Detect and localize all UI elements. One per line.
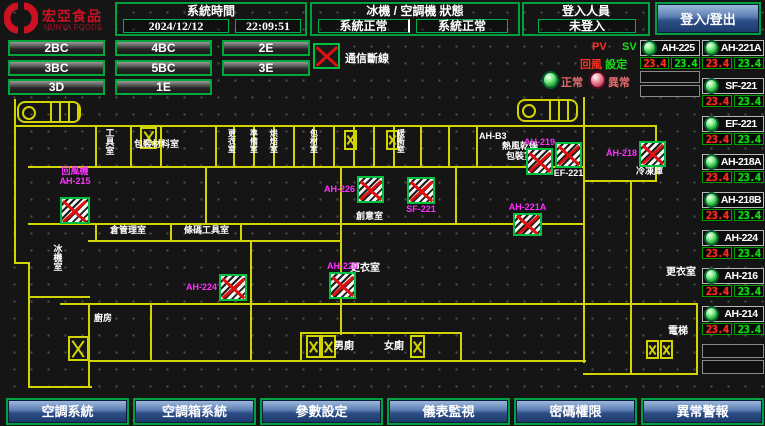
wall-segment <box>250 303 252 360</box>
status-lamp-icon <box>642 40 657 56</box>
device-label: AH-218 <box>599 149 637 159</box>
pv-value: 23.4 <box>702 171 732 183</box>
shaft-cross-icon <box>660 340 673 359</box>
room-label: 男廁 <box>334 342 354 353</box>
wall-segment <box>28 296 90 298</box>
wall-segment <box>215 125 217 168</box>
unit-values-ah-216: 23.423.4 <box>702 285 764 297</box>
pv-value: 23.4 <box>640 57 669 69</box>
wall-segment <box>130 125 132 168</box>
unit-label: AH-214 <box>719 308 763 320</box>
unit-ah-216[interactable]: AH-216 <box>702 268 764 284</box>
room-label: 包裝材料室 <box>134 140 179 149</box>
sv-value: 23.4 <box>734 323 764 335</box>
unit-label: AH-216 <box>719 270 763 282</box>
login-title: 登入人員 <box>524 4 648 18</box>
device-label: AH-224 <box>179 283 217 293</box>
logo: 宏亞食品 HUNYA FOODS <box>4 2 114 36</box>
room-label: 冷凍庫 <box>636 167 663 176</box>
chiller-status: 系統正常 <box>318 19 410 33</box>
room-label: 電梯 <box>668 327 688 338</box>
device-label: AH-220 <box>321 262 364 272</box>
sv-value: 23.4 <box>734 133 764 145</box>
login-logout-button[interactable]: 登入/登出 <box>657 4 759 33</box>
pv-value: 23.4 <box>702 285 732 297</box>
room-label: 緩衝室 <box>396 129 404 153</box>
device-ah-221a[interactable] <box>513 213 542 236</box>
system-time-title: 系統時間 <box>117 4 305 18</box>
shaft-cross-icon <box>410 335 425 358</box>
status-lamp-icon <box>704 306 719 322</box>
wall-segment <box>88 240 342 242</box>
unit-ah-221a[interactable]: AH-221A <box>702 40 764 56</box>
shaft-cross-icon <box>646 340 659 359</box>
room-label: 創意室 <box>356 212 383 221</box>
status-lamp-icon <box>704 268 719 284</box>
wall-segment <box>240 223 242 240</box>
unit-ah-214[interactable]: AH-214 <box>702 306 764 322</box>
abnormal-label: 異常 <box>608 74 630 90</box>
wall-segment <box>14 99 16 264</box>
room-label: 條碼工具室 <box>184 226 229 235</box>
pv-value: 23.4 <box>702 209 732 221</box>
nav-button-4[interactable]: 密碼權限 <box>516 400 635 423</box>
device-ah-224[interactable] <box>219 274 247 301</box>
unit-values-ah-225: 23.423.4 <box>640 57 700 69</box>
wall-segment <box>95 125 97 168</box>
room-label: 女廁 <box>384 342 404 353</box>
brand-logo-icon <box>4 2 38 34</box>
shaft-cross-icon <box>344 130 357 150</box>
sv-value: 23.4 <box>734 209 764 221</box>
time-value: 22:09:51 <box>235 19 301 33</box>
floor-button-3bc[interactable]: 3BC <box>8 60 105 76</box>
empty-slot <box>640 71 700 83</box>
scada-screen: 宏亞食品 HUNYA FOODS 系統時間 2024/12/12 22:09:5… <box>0 0 765 426</box>
wall-segment <box>583 180 655 182</box>
machine-status-title: 冰機 / 空調機 狀態 <box>312 4 518 18</box>
pv-label: PV <box>592 41 607 53</box>
nav-button-0[interactable]: 空調系統 <box>8 400 127 423</box>
wall-segment <box>28 386 92 388</box>
stairs-icon <box>17 101 81 123</box>
status-lamp-icon <box>704 154 719 170</box>
status-lamp-icon <box>704 192 719 208</box>
wall-segment <box>630 303 632 373</box>
device-ah-226[interactable] <box>357 176 384 203</box>
sv-value: 23.4 <box>734 95 764 107</box>
unit-ah-218a[interactable]: AH-218A <box>702 154 764 170</box>
room-label: 工具室 <box>104 128 113 155</box>
device-ef-221[interactable] <box>555 142 582 168</box>
shaft-cross-icon <box>68 336 89 361</box>
wall-segment <box>205 166 207 225</box>
wall-segment <box>88 360 303 362</box>
abnormal-lamp-icon <box>589 71 606 89</box>
device-label: 回風機AH-215 <box>52 167 98 187</box>
device-label: EF-221 <box>545 169 592 179</box>
device-label: AH-221A <box>505 203 550 213</box>
room-label: 更衣室 <box>227 129 235 153</box>
room-label: 更衣室 <box>666 268 696 279</box>
wall-segment <box>460 332 462 362</box>
empty-slot <box>702 360 764 374</box>
unit-ef-221[interactable]: EF-221 <box>702 116 764 132</box>
normal-lamp-icon <box>542 71 559 89</box>
floor-button-3e[interactable]: 3E <box>222 60 310 76</box>
wall-segment <box>300 360 586 362</box>
unit-label: AH-218A <box>719 156 763 168</box>
room-label: 準備室 <box>249 129 257 153</box>
comm-fail-icon <box>313 43 340 69</box>
room-label: 包材室 <box>309 129 317 153</box>
wall-segment <box>28 262 30 388</box>
room-label: 冰機室 <box>52 244 61 271</box>
wall-segment <box>630 180 632 305</box>
unit-label: SF-221 <box>719 80 763 92</box>
empty-slot <box>702 344 764 358</box>
login-status: 未登入 <box>538 19 636 33</box>
comm-fail-label: 通信斷線 <box>345 50 389 66</box>
nav-button-2[interactable]: 參數設定 <box>262 400 381 423</box>
device-label: SF-221 <box>397 205 445 215</box>
wall-segment <box>696 303 698 375</box>
wall-segment <box>420 125 422 168</box>
unit-sf-221[interactable]: SF-221 <box>702 78 764 94</box>
device-ah-215[interactable] <box>60 197 90 224</box>
room-label: 倉管理室 <box>110 226 146 235</box>
unit-label: AH-221A <box>719 42 763 54</box>
shaft-cross-icon <box>306 335 321 358</box>
sv-value: 23.4 <box>671 57 700 69</box>
wall-segment <box>448 125 450 168</box>
date-value: 2024/12/12 <box>123 19 229 33</box>
unit-label: AH-225 <box>657 42 699 54</box>
floor-button-2bc[interactable]: 2BC <box>8 40 105 56</box>
normal-label: 正常 <box>561 74 583 90</box>
wall-segment <box>455 166 457 225</box>
unit-values-ah-214: 23.423.4 <box>702 323 764 335</box>
unit-values-ah-218b: 23.423.4 <box>702 209 764 221</box>
nav-button-5[interactable]: 異常警報 <box>643 400 762 423</box>
floor-button-5bc[interactable]: 5BC <box>115 60 212 76</box>
pv-value: 23.4 <box>702 323 732 335</box>
wall-segment <box>150 303 152 360</box>
wall-segment <box>340 166 342 225</box>
ac-status: 系統正常 <box>416 19 508 33</box>
wall-segment <box>583 97 585 363</box>
wall-segment <box>583 373 698 375</box>
brand-name-en: HUNYA FOODS <box>44 23 102 32</box>
sv-value: 23.4 <box>734 57 764 69</box>
wall-segment <box>476 125 478 168</box>
device-ah-218[interactable] <box>639 141 666 167</box>
room-label: 烘焙室 <box>269 129 277 153</box>
login-section: 登入人員 未登入 <box>522 2 650 36</box>
status-lamp-icon <box>704 230 719 246</box>
system-time-section: 系統時間 2024/12/12 22:09:51 <box>115 2 307 36</box>
pv-value: 23.4 <box>702 133 732 145</box>
unit-label: AH-218B <box>719 194 763 206</box>
unit-label: AH-224 <box>719 232 763 244</box>
wall-segment <box>300 332 302 362</box>
wall-segment <box>300 332 462 334</box>
floor-button-4bc[interactable]: 4BC <box>115 40 212 56</box>
unit-values-ah-218a: 23.423.4 <box>702 171 764 183</box>
wall-segment <box>333 125 335 168</box>
machine-status-section: 冰機 / 空調機 狀態 系統正常 系統正常 <box>310 2 520 36</box>
device-sf-221[interactable] <box>407 177 435 204</box>
floor-button-2e[interactable]: 2E <box>222 40 310 56</box>
status-lamp-icon <box>704 78 719 94</box>
wall-segment <box>28 166 584 168</box>
unit-values-ef-221: 23.423.4 <box>702 133 764 145</box>
unit-ah-224[interactable]: AH-224 <box>702 230 764 246</box>
pv-value: 23.4 <box>702 57 732 69</box>
floor-button-3d[interactable]: 3D <box>8 79 105 95</box>
empty-slot <box>640 85 700 97</box>
sv-value: 23.4 <box>734 171 764 183</box>
setting-label-green: 設定 <box>605 56 627 72</box>
stairs-icon <box>517 99 578 122</box>
floor-button-1e[interactable]: 1E <box>115 79 212 95</box>
unit-values-ah-221a: 23.423.4 <box>702 57 764 69</box>
sv-value: 23.4 <box>734 247 764 259</box>
wall-segment <box>95 223 97 240</box>
unit-values-ah-224: 23.423.4 <box>702 247 764 259</box>
status-lamp-icon <box>704 116 719 132</box>
device-label: AH-226 <box>317 185 355 195</box>
wall-segment <box>170 223 172 240</box>
wall-segment <box>293 125 295 168</box>
status-lamp-icon <box>704 40 719 56</box>
wall-segment <box>373 125 375 168</box>
room-label: 廚房 <box>94 314 112 323</box>
unit-values-sf-221: 23.423.4 <box>702 95 764 107</box>
pv-value: 23.4 <box>702 95 732 107</box>
unit-ah-218b[interactable]: AH-218B <box>702 192 764 208</box>
wall-segment <box>250 240 252 304</box>
unit-ah-225[interactable]: AH-225 <box>640 40 700 56</box>
pv-value: 23.4 <box>702 247 732 259</box>
nav-button-3[interactable]: 儀表監視 <box>389 400 508 423</box>
device-ah-220[interactable] <box>329 272 356 299</box>
setting-label-red: 回風 <box>580 56 602 72</box>
sv-label: SV <box>622 41 637 53</box>
nav-button-1[interactable]: 空調箱系統 <box>135 400 254 423</box>
unit-label: EF-221 <box>719 118 763 130</box>
sv-value: 23.4 <box>734 285 764 297</box>
wall-segment <box>60 303 698 305</box>
